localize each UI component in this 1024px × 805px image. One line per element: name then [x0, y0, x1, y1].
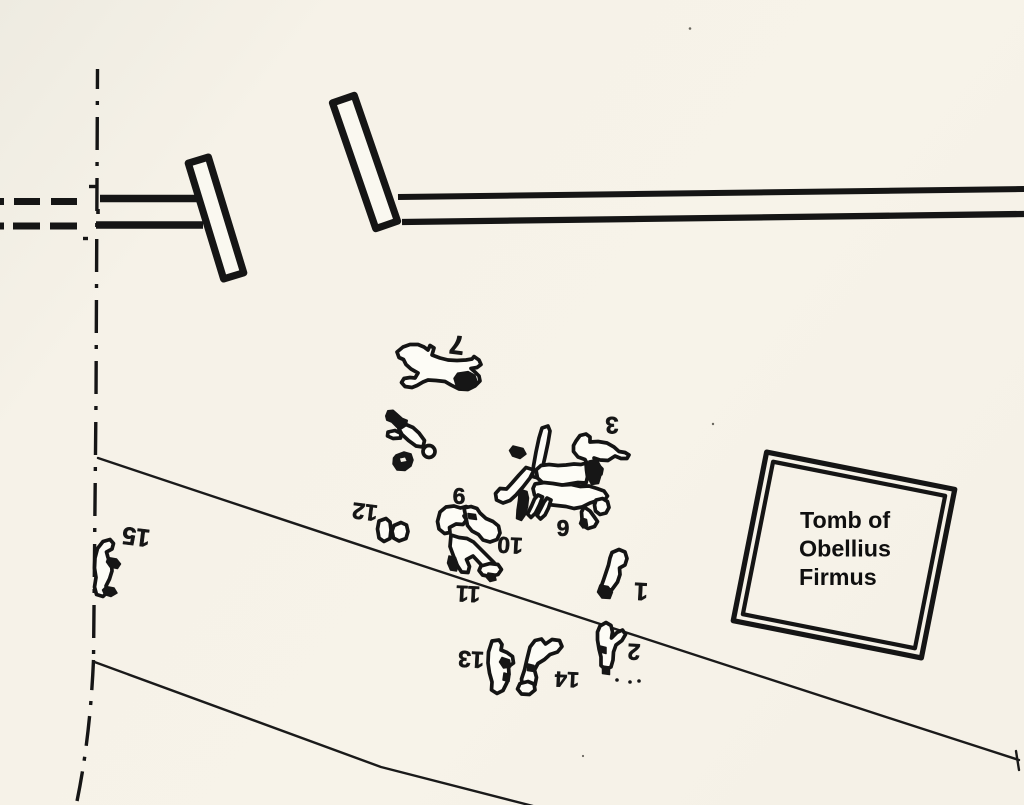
svg-text:15: 15 [121, 521, 152, 552]
svg-text:2: 2 [627, 639, 641, 666]
svg-text:1: 1 [633, 577, 648, 606]
svg-text:Firmus: Firmus [799, 564, 877, 590]
svg-text:Obellius: Obellius [799, 536, 891, 562]
svg-text:9: 9 [557, 515, 570, 541]
svg-text:13: 13 [457, 646, 484, 673]
svg-text:14: 14 [553, 666, 580, 692]
svg-text:Tomb of: Tomb of [800, 507, 890, 533]
svg-text:10: 10 [497, 532, 524, 559]
svg-text:6: 6 [453, 483, 466, 509]
svg-text:3: 3 [605, 411, 619, 438]
svg-text:12: 12 [351, 498, 380, 527]
svg-text:11: 11 [455, 580, 481, 607]
